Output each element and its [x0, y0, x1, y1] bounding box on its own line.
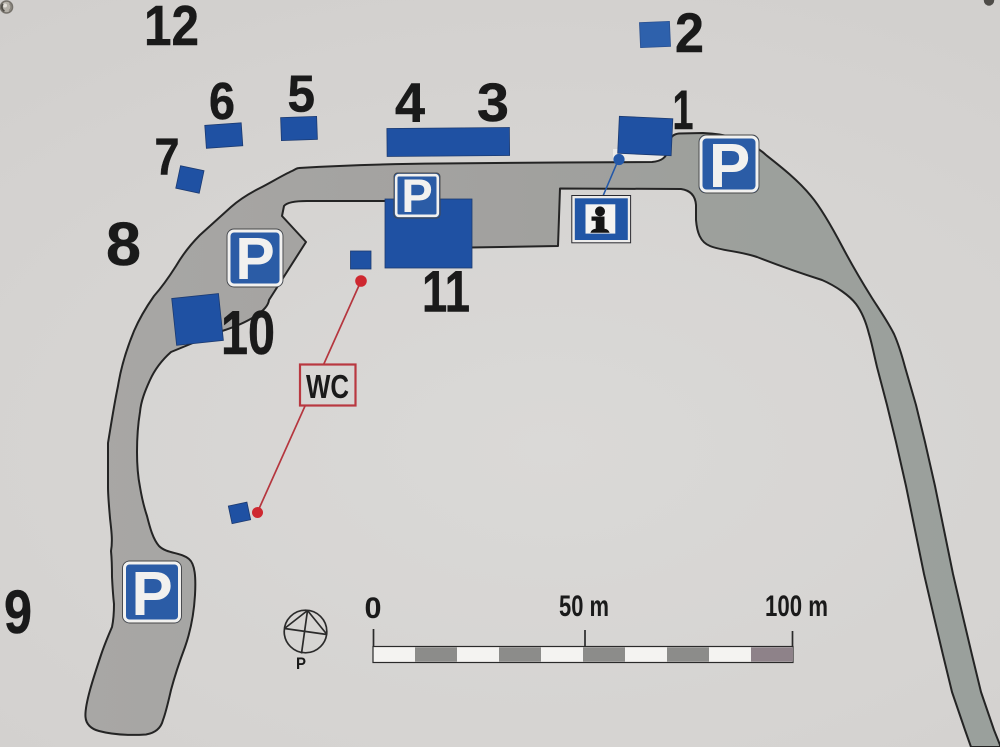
svg-text:P: P — [235, 226, 274, 292]
svg-text:1: 1 — [673, 78, 694, 141]
svg-text:2: 2 — [675, 1, 704, 64]
svg-text:100 m: 100 m — [765, 590, 828, 623]
svg-text:12: 12 — [144, 0, 199, 58]
svg-text:6: 6 — [209, 73, 235, 131]
svg-text:P: P — [131, 560, 172, 629]
svg-text:10: 10 — [221, 299, 275, 368]
svg-text:WC: WC — [306, 368, 349, 405]
svg-text:P: P — [401, 169, 432, 222]
svg-text:3: 3 — [477, 73, 509, 133]
svg-text:7: 7 — [155, 129, 180, 187]
svg-text:0: 0 — [365, 592, 382, 625]
svg-text:50 m: 50 m — [559, 590, 609, 623]
svg-text:5: 5 — [288, 66, 316, 124]
svg-text:P: P — [296, 655, 306, 673]
svg-text:4: 4 — [395, 71, 425, 134]
svg-text:9: 9 — [4, 578, 32, 646]
svg-text:P: P — [709, 132, 750, 201]
svg-text:8: 8 — [106, 210, 141, 278]
svg-text:11: 11 — [422, 260, 470, 325]
